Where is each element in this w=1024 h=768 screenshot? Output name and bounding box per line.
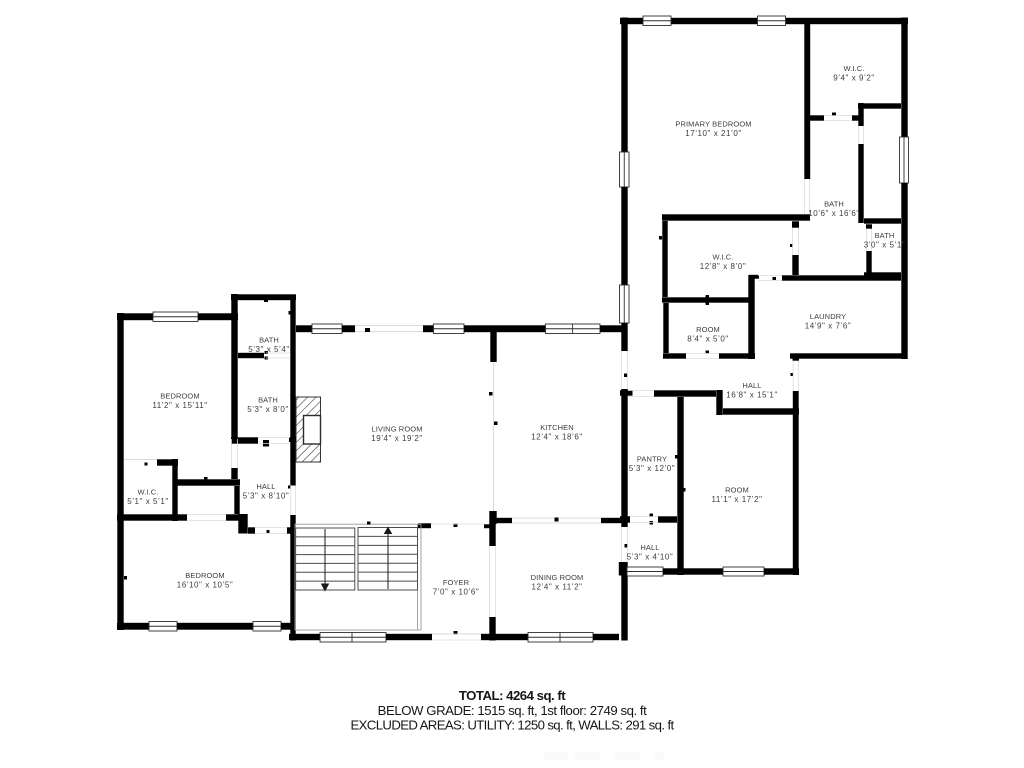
svg-text:5’3" x 12’0": 5’3" x 12’0": [629, 464, 676, 473]
svg-text:EXCLUDED AREAS: UTILITY: 1250: EXCLUDED AREAS: UTILITY: 1250 sq. ft, WA…: [350, 717, 674, 732]
svg-text:ROOM: ROOM: [696, 325, 720, 334]
svg-text:HALL: HALL: [742, 381, 761, 390]
svg-text:FOYER: FOYER: [443, 578, 470, 587]
svg-text:5’3" x 8’0": 5’3" x 8’0": [247, 405, 289, 414]
svg-text:BELOW GRADE: 1515 sq. ft, 1st: BELOW GRADE: 1515 sq. ft, 1st floor: 274…: [378, 703, 647, 718]
svg-text:3’0" x 5’1": 3’0" x 5’1": [864, 240, 906, 249]
svg-text:11’2" x 15’11": 11’2" x 15’11": [152, 401, 207, 410]
svg-text:BATH: BATH: [258, 396, 278, 405]
svg-text:16’8" x 15’1": 16’8" x 15’1": [726, 390, 778, 399]
svg-text:9’4" x 9’2": 9’4" x 9’2": [833, 73, 875, 82]
svg-text:5’3" x 5’4": 5’3" x 5’4": [248, 345, 290, 354]
svg-text:PRIMARY BEDROOM: PRIMARY BEDROOM: [675, 120, 751, 129]
svg-text:TOTAL: 4264 sq. ft: TOTAL: 4264 sq. ft: [459, 688, 566, 703]
svg-text:PANTRY: PANTRY: [637, 455, 667, 464]
svg-text:BATH: BATH: [824, 200, 844, 209]
svg-text:17’10" x 21’0": 17’10" x 21’0": [685, 129, 742, 138]
svg-text:BATH: BATH: [875, 231, 895, 240]
svg-text:5’1" x 5’1": 5’1" x 5’1": [127, 497, 169, 506]
svg-text:11’1" x 17’2": 11’1" x 17’2": [712, 495, 763, 504]
svg-text:BATH: BATH: [259, 336, 279, 345]
svg-text:12’4" x 18’6": 12’4" x 18’6": [531, 432, 583, 441]
svg-text:KITCHEN: KITCHEN: [540, 423, 574, 432]
svg-text:BEDROOM: BEDROOM: [185, 571, 224, 580]
svg-text:14’9" x 7’6": 14’9" x 7’6": [805, 321, 852, 330]
svg-text:BEDROOM: BEDROOM: [160, 392, 199, 401]
svg-text:ROOM: ROOM: [725, 486, 749, 495]
svg-text:DINING ROOM: DINING ROOM: [531, 573, 584, 582]
svg-text:W.I.C.: W.I.C.: [843, 64, 864, 73]
svg-text:LIVING ROOM: LIVING ROOM: [371, 425, 422, 434]
svg-text:16’10" x 10’5": 16’10" x 10’5": [177, 580, 234, 589]
svg-text:12’4" x 11’2": 12’4" x 11’2": [532, 582, 583, 591]
svg-text:19’4" x 19’2": 19’4" x 19’2": [371, 434, 423, 443]
svg-text:HALL: HALL: [256, 482, 275, 491]
svg-text:W.I.C.: W.I.C.: [137, 488, 158, 497]
svg-text:10’6" x 16’6": 10’6" x 16’6": [808, 209, 860, 218]
svg-text:HALL: HALL: [640, 543, 659, 552]
svg-text:LAUNDRY: LAUNDRY: [810, 312, 846, 321]
svg-text:W.I.C.: W.I.C.: [712, 253, 733, 262]
svg-text:8’4" x 5’0": 8’4" x 5’0": [687, 334, 729, 343]
svg-text:7’0" x 10’6": 7’0" x 10’6": [433, 587, 480, 596]
svg-text:5’3" x 8’10": 5’3" x 8’10": [243, 491, 290, 500]
svg-text:5’3" x 4’10": 5’3" x 4’10": [627, 552, 674, 561]
svg-text:12’8" x 8’0": 12’8" x 8’0": [700, 262, 747, 271]
